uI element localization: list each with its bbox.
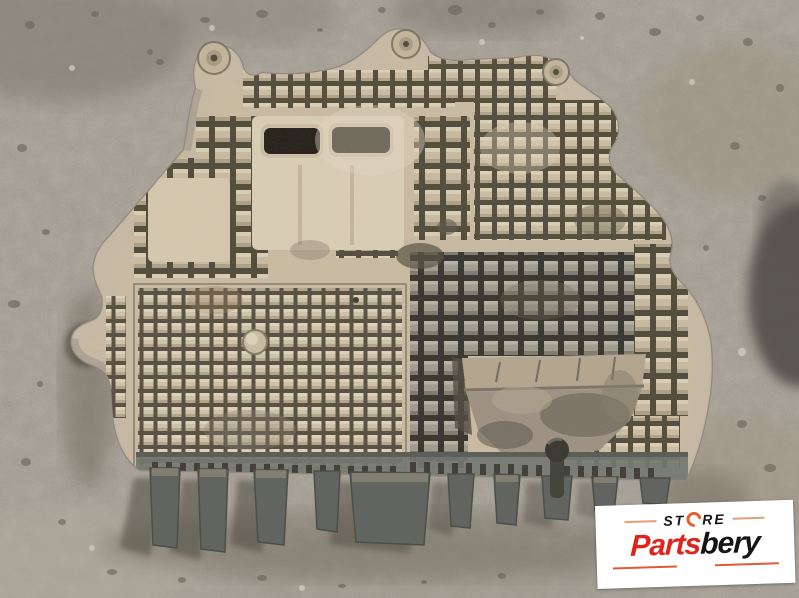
brand-name: Partsbery bbox=[630, 528, 761, 562]
decorative-line-left bbox=[624, 520, 656, 523]
store-text-left: ST bbox=[663, 513, 685, 528]
decorative-line-right bbox=[733, 516, 765, 519]
brand-name-black: bery bbox=[700, 526, 761, 561]
brand-underlines bbox=[613, 562, 779, 569]
store-text-right: RE bbox=[702, 511, 726, 526]
underline-left bbox=[613, 565, 677, 569]
photo-canvas: STRE Partsbery bbox=[0, 0, 799, 598]
mounting-boss bbox=[543, 59, 569, 85]
mounting-boss bbox=[198, 42, 230, 74]
mounting-boss bbox=[392, 30, 420, 58]
store-label: STRE bbox=[663, 511, 726, 528]
underline-right bbox=[715, 562, 779, 566]
brand-name-red: Parts bbox=[630, 528, 701, 563]
watermark-logo: STRE Partsbery bbox=[595, 500, 796, 589]
